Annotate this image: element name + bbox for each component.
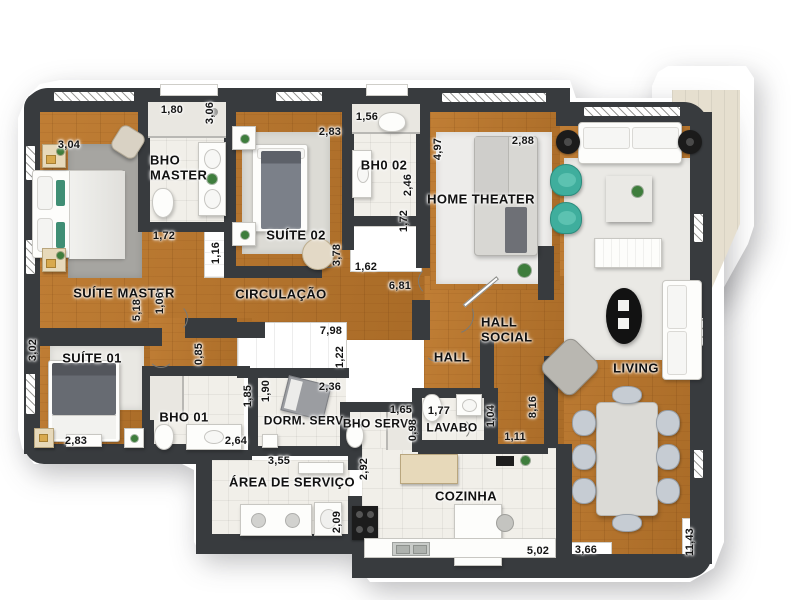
dim-suite01-bottom: 2,83 xyxy=(65,435,87,447)
dim-home-theater-side: 4,97 xyxy=(432,138,444,160)
room-label-circulacao: CIRCULAÇÃO xyxy=(235,288,326,303)
speaker-icon xyxy=(678,130,702,154)
dim-dorm-serv-side: 1,90 xyxy=(260,380,272,402)
window xyxy=(584,107,680,116)
dim-suite-master-side2: 1,06 xyxy=(154,292,166,314)
dim-bh02-side: 2,46 xyxy=(402,174,414,196)
nightstand xyxy=(124,428,144,448)
room-label-living: LIVING xyxy=(613,362,659,377)
window-sill xyxy=(160,84,218,96)
wall-segment xyxy=(24,328,162,346)
dim-closet-116: 1,16 xyxy=(210,242,222,264)
nightstand xyxy=(34,428,54,448)
dim-area-side2: 2,09 xyxy=(331,511,343,533)
dim-bho-master-top: 1,80 xyxy=(161,104,183,116)
media-panel xyxy=(538,246,554,300)
vanity xyxy=(456,394,482,416)
room-label-bho-01: BHO 01 xyxy=(159,411,208,426)
sink-serv xyxy=(262,434,278,448)
dim-area-top: 3,55 xyxy=(268,455,290,467)
wall-segment xyxy=(140,450,252,460)
dim-bho-serv-top: 1,65 xyxy=(390,404,412,416)
room-label-lavabo: LAVABO xyxy=(426,421,477,434)
nightstand xyxy=(232,126,256,150)
dim-bh02-side2: 1,72 xyxy=(398,210,410,232)
dining-table xyxy=(596,402,658,516)
sofa-right xyxy=(662,280,702,380)
dim-closet-122: 1,22 xyxy=(334,346,346,368)
dim-suite02-bottom: 3,78 xyxy=(331,244,343,266)
dining-chair xyxy=(612,386,642,404)
door-arc xyxy=(148,342,174,368)
dim-suite-master-top: 3,04 xyxy=(58,139,80,151)
window xyxy=(54,92,134,101)
floor-plan: SUÍTE MASTER BHO MASTER SUÍTE 02 BH0 02 … xyxy=(0,0,800,600)
dim-home-theater-top: 2,88 xyxy=(512,135,534,147)
toilet xyxy=(154,424,174,450)
wall-bottom-area xyxy=(196,534,368,554)
room-label-area-servico: ÁREA DE SERVIÇO xyxy=(229,476,355,491)
dim-lavabo-top: 1,77 xyxy=(428,405,450,417)
dining-chair xyxy=(612,514,642,532)
dim-circulacao: 6,81 xyxy=(389,280,411,292)
plant xyxy=(518,264,531,277)
cushion xyxy=(56,222,65,248)
toilet xyxy=(152,188,174,218)
dim-right-side: 11,43 xyxy=(684,528,696,556)
stool xyxy=(496,514,514,532)
window xyxy=(442,93,546,102)
dining-chair xyxy=(656,478,680,504)
dining-chair xyxy=(572,444,596,470)
bed-suite-02 xyxy=(252,144,308,232)
dim-hall-side: 8,16 xyxy=(527,396,539,418)
dining-chair xyxy=(572,410,596,436)
bench xyxy=(594,238,662,268)
speaker-icon xyxy=(556,130,580,154)
blanket xyxy=(52,363,116,415)
dim-bho-serv-side: 0,98 xyxy=(407,419,419,441)
nightstand xyxy=(42,248,66,272)
plant xyxy=(632,186,643,197)
dim-bho01-side: 1,85 xyxy=(242,385,254,407)
dim-bho-master-side: 3,06 xyxy=(204,102,216,124)
dim-bh02-closet: 1,62 xyxy=(355,261,377,273)
pillow xyxy=(37,176,53,210)
bed-suite-01 xyxy=(48,360,120,442)
room-label-dorm-serv: DORM. SERV. xyxy=(264,414,346,427)
coffee-machine xyxy=(496,456,514,466)
dim-lavabo-bottom: 1,11 xyxy=(504,431,526,443)
window xyxy=(694,450,703,478)
oval-side-table xyxy=(606,288,642,344)
accent-chair xyxy=(550,202,582,234)
door-arc xyxy=(418,266,448,296)
dim-dining-bottom: 3,66 xyxy=(575,544,597,556)
wall-segment xyxy=(248,370,258,454)
toilet xyxy=(378,112,406,132)
room-label-suite-01: SUÍTE 01 xyxy=(62,352,122,367)
washer-dryer xyxy=(240,504,312,536)
sofa-top xyxy=(578,122,682,164)
window-sill xyxy=(366,84,408,96)
dim-suite02-top: 2,83 xyxy=(319,126,341,138)
dim-cozinha-bottom: 5,02 xyxy=(527,545,549,557)
room-label-bho-serv: BHO SERV. xyxy=(343,417,411,430)
dim-bho-master-bottom: 1,72 xyxy=(153,230,175,242)
window xyxy=(276,92,322,101)
nightstand xyxy=(232,222,256,246)
pillow xyxy=(37,218,53,252)
dim-closet-798: 7,98 xyxy=(320,325,342,337)
kitchen-counter-top xyxy=(400,454,458,484)
dining-chair xyxy=(572,478,596,504)
cushion xyxy=(56,180,65,206)
coffee-tables xyxy=(606,176,652,222)
room-label-cozinha: COZINHA xyxy=(435,490,497,505)
dim-area-side: 2,92 xyxy=(358,458,370,480)
wall-segment xyxy=(237,322,265,338)
wall-segment xyxy=(556,444,572,562)
dim-bh02-top: 1,56 xyxy=(356,111,378,123)
dim-hall-085: 0,85 xyxy=(193,343,205,365)
blanket xyxy=(261,151,301,229)
dim-dorm-serv-top: 2,36 xyxy=(319,381,341,393)
cooktop xyxy=(352,506,378,540)
wall-left-area xyxy=(196,458,212,544)
room-label-home-theater: HOME THEATER xyxy=(427,193,535,208)
dim-bho01-bottom: 2,64 xyxy=(225,435,247,447)
wall-segment xyxy=(185,318,237,338)
bed-suite-master xyxy=(32,170,124,258)
plant xyxy=(521,456,530,465)
accent-chair xyxy=(550,164,582,196)
room-label-hall: HALL xyxy=(434,351,470,366)
dim-suite-master-side: 5,18 xyxy=(131,299,143,321)
wall-segment xyxy=(412,300,430,340)
window xyxy=(26,374,35,414)
wall-segment xyxy=(150,366,250,376)
dim-suite01-side: 3,02 xyxy=(27,339,39,361)
dim-lavabo-side: 1,04 xyxy=(485,405,497,427)
dining-chair xyxy=(656,410,680,436)
window xyxy=(694,214,703,242)
wall-segment xyxy=(480,340,494,390)
dining-chair xyxy=(656,444,680,470)
room-label-hall-social: HALL SOCIAL xyxy=(481,315,557,344)
room-label-suite-02: SUÍTE 02 xyxy=(266,229,326,244)
room-label-bho-master: BHO MASTER xyxy=(150,153,216,182)
blanket xyxy=(69,171,125,259)
cabinet xyxy=(298,462,344,474)
double-sink xyxy=(392,542,430,556)
room-label-bh0-02: BH0 02 xyxy=(361,159,407,174)
wall-segment xyxy=(418,444,548,454)
